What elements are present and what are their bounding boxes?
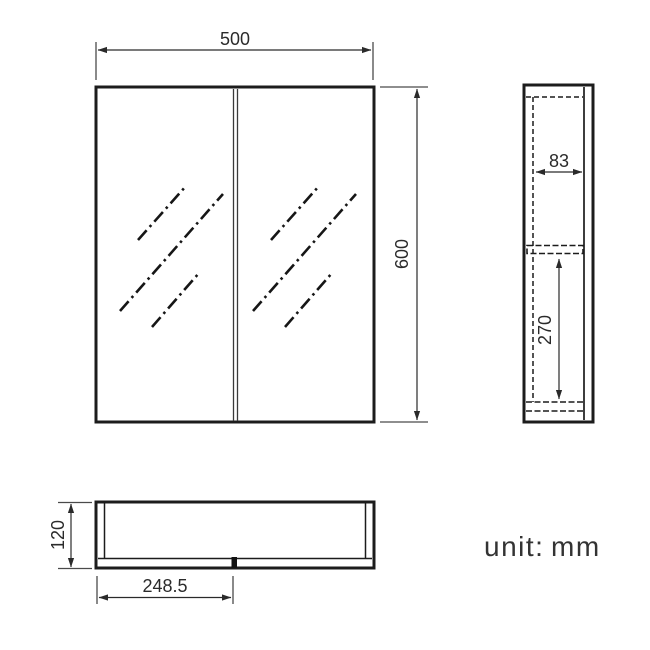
mirror-hatch-stroke [253,194,356,311]
door-split-tick [232,557,238,568]
dim-label-door-width: 248.5 [142,576,187,596]
mirror-hatch-stroke [271,186,319,240]
mirror-hatch-stroke [285,273,332,327]
mirror-cabinet-dimension-drawing: 500 600 83 270 120 [0,0,650,650]
dim-label-bottom-depth: 120 [48,520,68,550]
dim-label-front-width: 500 [220,29,250,49]
dim-door-width: 248.5 [97,576,233,604]
dim-side-depth: 83 [536,151,582,172]
technical-drawing-canvas: 500 600 83 270 120 [0,0,650,650]
dim-label-front-height: 600 [392,239,412,269]
front-view-outline [96,87,374,422]
unit-note-label: unit: [484,531,544,562]
dim-front-height: 600 [380,87,428,422]
dim-label-side-opening-height: 270 [535,315,555,345]
dim-front-width: 500 [96,29,373,80]
front-view [96,87,374,422]
middle-shelf [527,246,583,254]
mirror-hatch-stroke [138,186,186,240]
bottom-view [96,502,374,568]
mirror-hatch-stroke [152,273,199,327]
unit-note: unit: mm [484,531,601,562]
dim-side-opening-height: 270 [535,259,559,399]
dim-bottom-depth: 120 [48,503,92,569]
mirror-hatch-stroke [120,194,223,311]
unit-note-value: mm [551,531,601,562]
mirror-hatch-left-door [120,186,223,327]
dim-label-side-depth: 83 [549,151,569,171]
mirror-hatch-right-door [253,186,356,327]
